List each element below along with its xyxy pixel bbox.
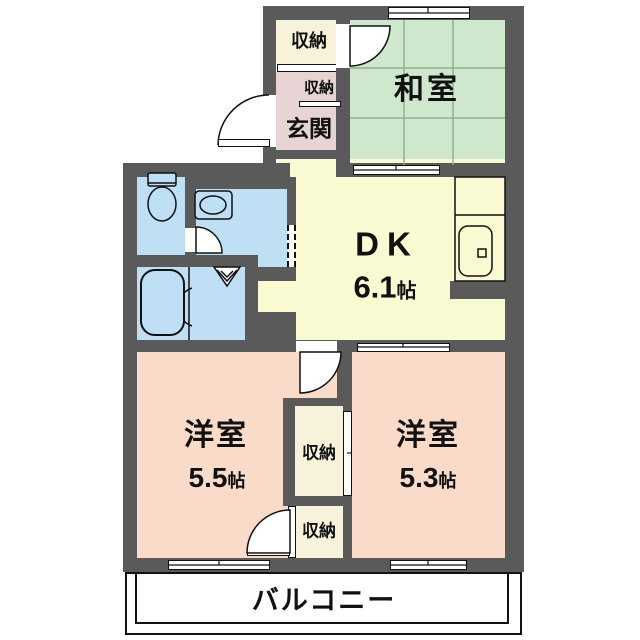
window-washitsu-top bbox=[388, 7, 470, 19]
wall-dk-chunk bbox=[258, 312, 296, 343]
sliding-door-dk-bedroom-right bbox=[357, 343, 450, 352]
room-toilet bbox=[137, 177, 185, 258]
storage-entry-inner-door bbox=[299, 101, 341, 107]
bedroom-right-size-value: 5.3 bbox=[400, 462, 439, 493]
storage-entry-top-door bbox=[277, 64, 342, 72]
wall-left bbox=[123, 163, 137, 572]
room-bedroom-right bbox=[352, 352, 505, 558]
closet-upper-door bbox=[343, 411, 352, 496]
dk-size-value: 6.1 bbox=[353, 270, 396, 305]
label-closet-lower: 収納 bbox=[302, 523, 336, 540]
bedroom-right-size-unit: 帖 bbox=[438, 471, 456, 491]
label-closet-upper: 収納 bbox=[302, 445, 336, 462]
window-bedroom-left bbox=[168, 560, 270, 570]
wall-bath-bottom bbox=[123, 340, 296, 352]
room-dk-notch bbox=[258, 281, 296, 312]
accordion-door-washroom bbox=[287, 225, 296, 267]
wall-closet-right-lower bbox=[343, 506, 352, 558]
label-dk-size: 6.1帖 bbox=[353, 272, 416, 303]
floor-plan: 和室 DK 6.1帖 玄関 収納 収納 洋室 5.5帖 洋室 5.3帖 収納 収… bbox=[0, 0, 640, 640]
toilet-door-gap bbox=[185, 228, 196, 252]
sliding-door-washitsu bbox=[353, 165, 440, 175]
wall-washroom-top bbox=[185, 177, 296, 189]
label-storage-entry-inner: 収納 bbox=[304, 81, 334, 96]
label-dk: DK bbox=[355, 228, 419, 261]
wall-closet-left bbox=[283, 398, 295, 506]
wall-bath-right bbox=[245, 255, 258, 343]
entry-door-arc bbox=[218, 95, 269, 145]
genkan-step bbox=[276, 150, 343, 159]
room-bedroom-left bbox=[137, 352, 290, 558]
label-bedroom-left-size: 5.5帖 bbox=[189, 464, 246, 492]
label-washitsu: 和室 bbox=[394, 75, 460, 105]
wall-kitchen-stub bbox=[450, 281, 505, 299]
label-bedroom-left: 洋室 bbox=[184, 421, 248, 451]
label-storage-entry-top: 収納 bbox=[291, 32, 327, 50]
label-balcony: バルコニー bbox=[252, 588, 396, 615]
label-bedroom-right-size: 5.3帖 bbox=[400, 464, 457, 492]
washitsu-closet-gap bbox=[336, 24, 350, 68]
bedroom-left-size-value: 5.5 bbox=[189, 462, 228, 493]
wall-right bbox=[505, 6, 524, 572]
bedroom-left-size-unit: 帖 bbox=[227, 471, 245, 491]
dk-bedroom-door-gap bbox=[296, 341, 337, 352]
closet-lower-door-leaf bbox=[247, 548, 290, 556]
window-bedroom-right bbox=[390, 560, 467, 570]
room-bath bbox=[137, 266, 245, 343]
wall-toilet-bottom bbox=[137, 255, 245, 267]
label-genkan: 玄関 bbox=[286, 118, 332, 141]
label-bedroom-right: 洋室 bbox=[396, 421, 460, 451]
wall-bath-top bbox=[123, 163, 290, 177]
room-bedroom-left-notch bbox=[290, 352, 337, 398]
wall-closet-mid bbox=[295, 496, 352, 506]
dk-size-unit: 帖 bbox=[397, 281, 417, 303]
wall-bedroom-divider bbox=[337, 343, 352, 406]
entry-door-leaf bbox=[218, 139, 270, 147]
wall-toilet-right-upper bbox=[185, 189, 196, 228]
wall-dk-arm bbox=[258, 267, 296, 281]
wall-washroom-right bbox=[287, 177, 296, 225]
